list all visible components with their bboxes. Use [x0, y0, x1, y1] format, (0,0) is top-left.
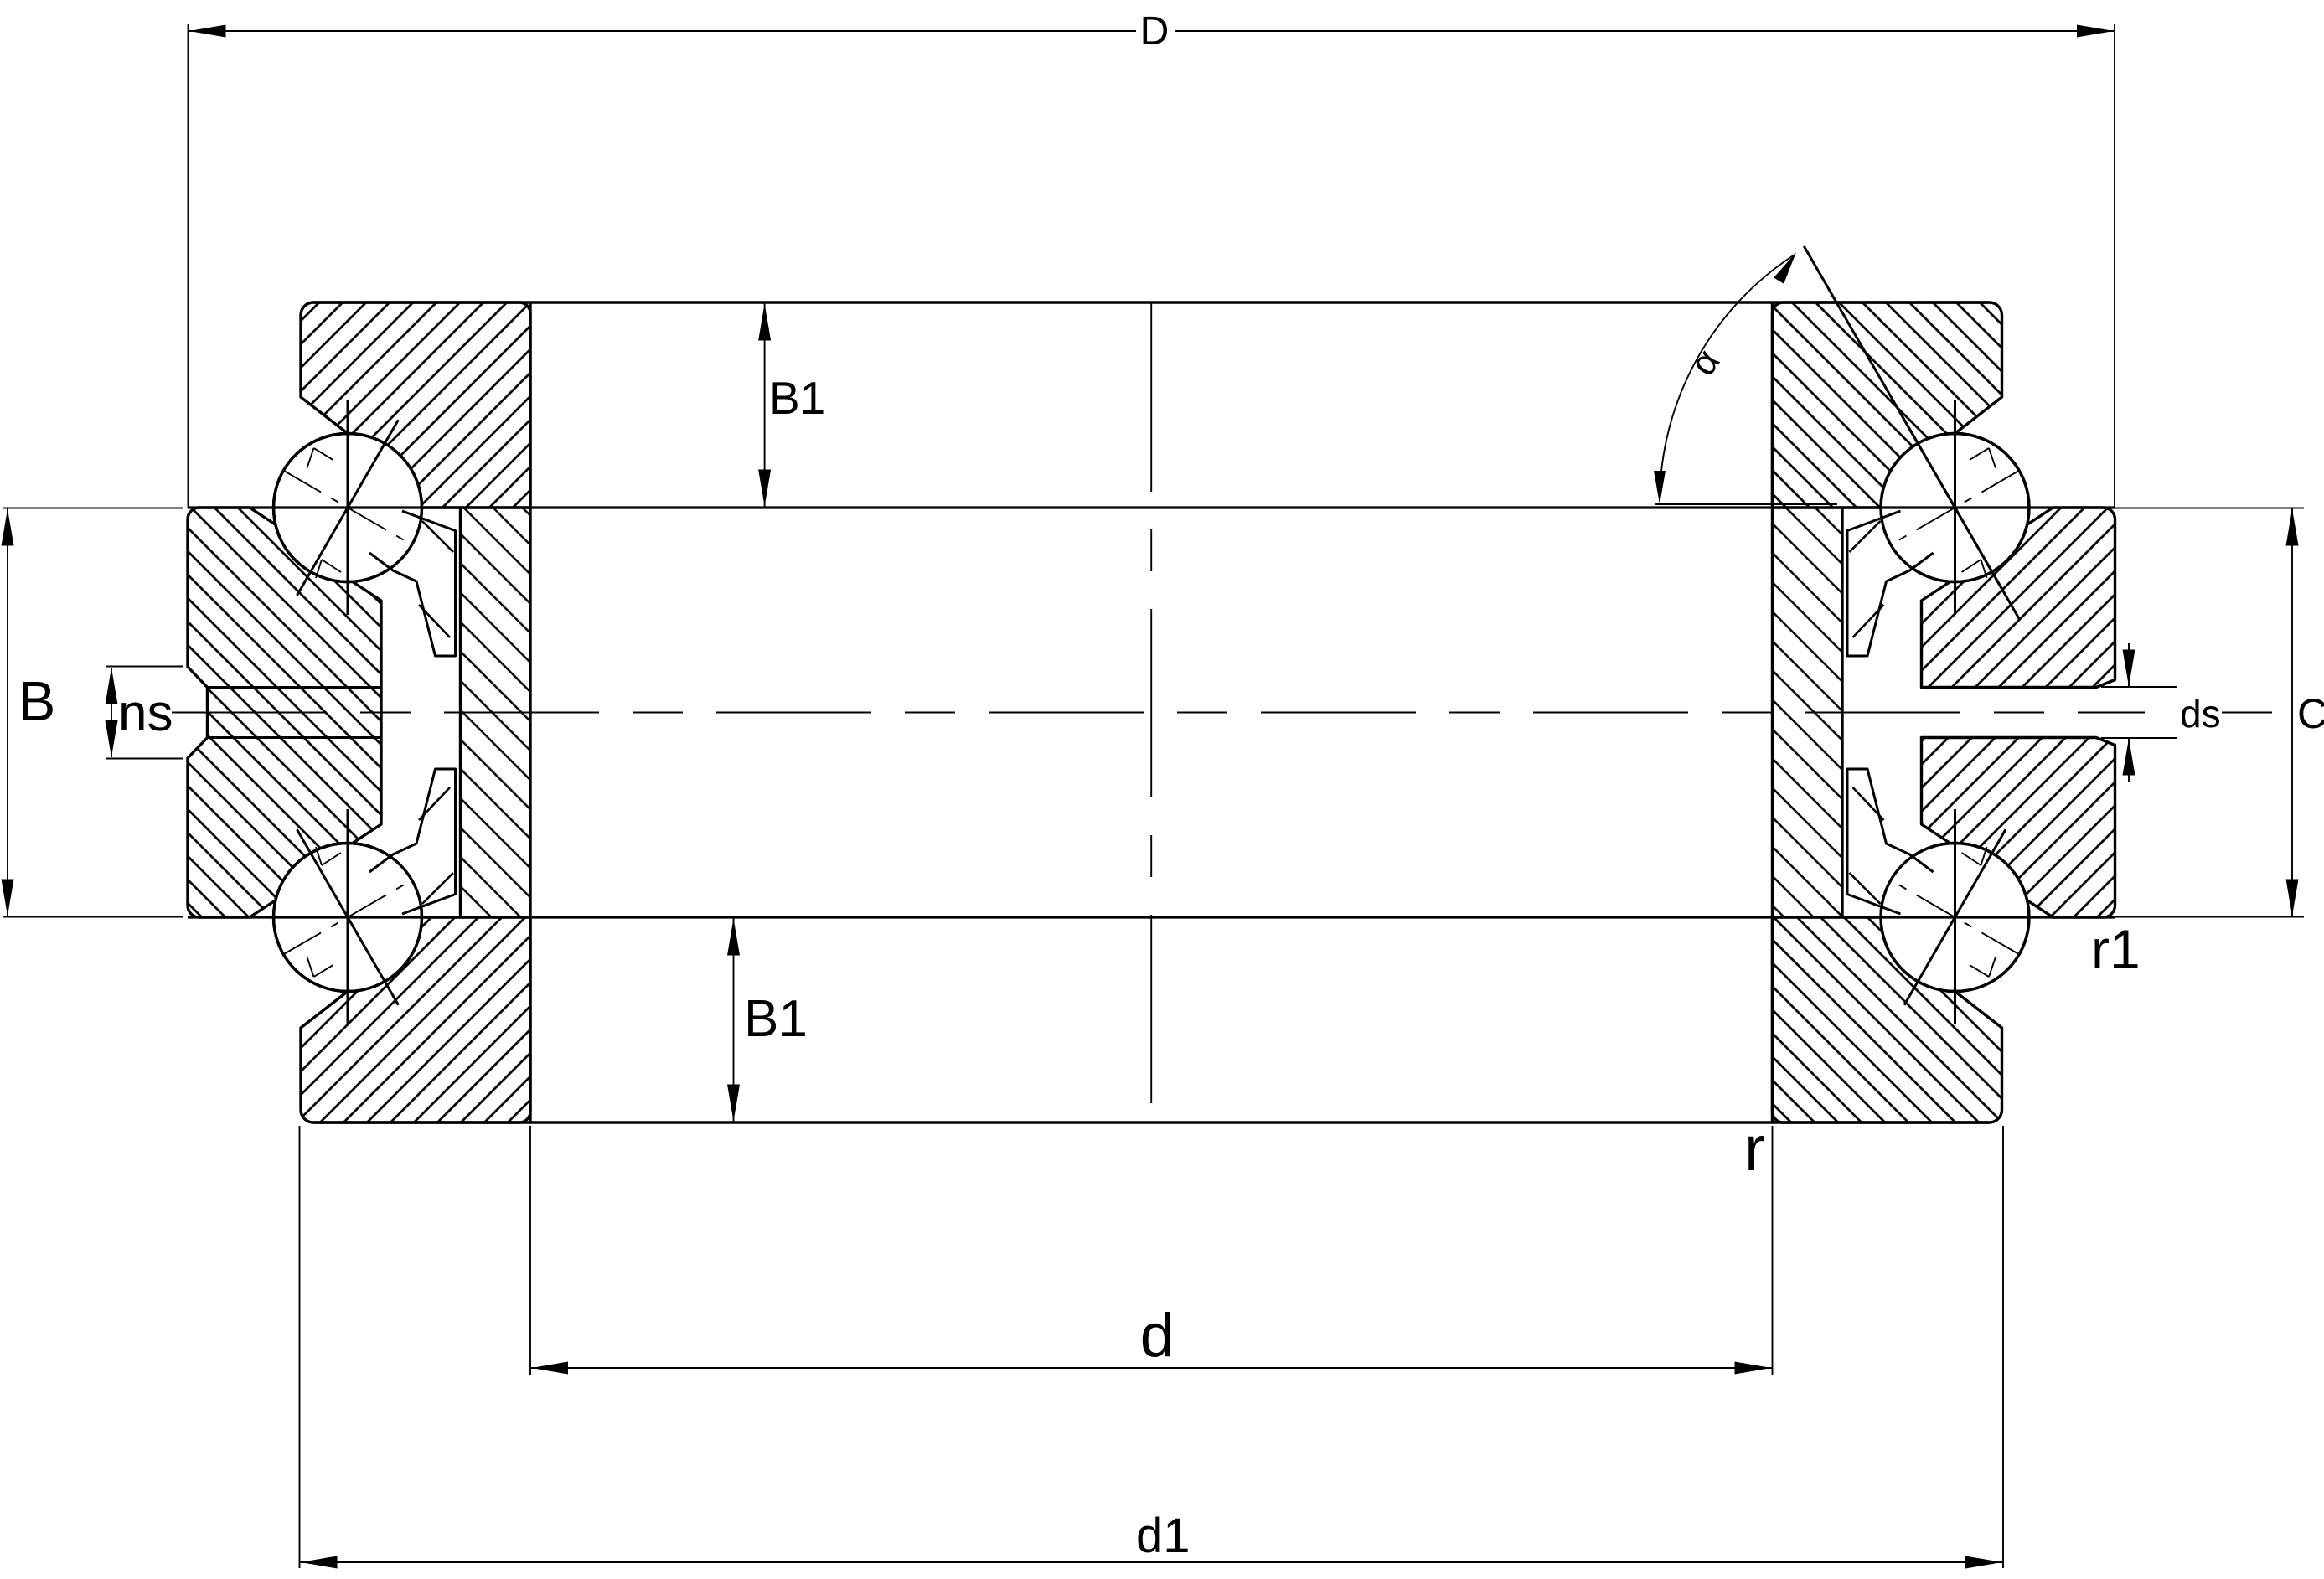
- svg-text:ns: ns: [118, 684, 173, 742]
- svg-text:B: B: [18, 670, 56, 733]
- svg-text:D: D: [1140, 9, 1170, 54]
- svg-text:r: r: [1744, 1113, 1765, 1184]
- svg-text:d1: d1: [1136, 1509, 1190, 1563]
- svg-text:B1: B1: [744, 990, 808, 1048]
- svg-text:C: C: [2297, 690, 2324, 737]
- svg-text:B1: B1: [769, 372, 825, 424]
- svg-text:r1: r1: [2091, 918, 2141, 980]
- svg-text:ds: ds: [2180, 692, 2221, 735]
- svg-text:d: d: [1140, 1302, 1175, 1370]
